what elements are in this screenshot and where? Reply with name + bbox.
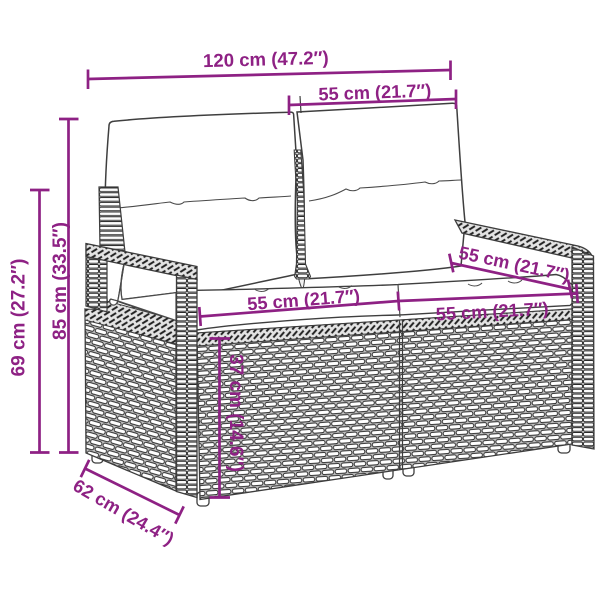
svg-text:37 cm (14.6″): 37 cm (14.6″) bbox=[225, 354, 246, 472]
svg-text:55 cm (21.7″): 55 cm (21.7″) bbox=[318, 81, 431, 105]
svg-text:69 cm (27.2″): 69 cm (27.2″) bbox=[9, 259, 30, 377]
svg-text:85 cm (33.5″): 85 cm (33.5″) bbox=[50, 222, 71, 340]
svg-text:120 cm (47.2″): 120 cm (47.2″) bbox=[203, 47, 329, 71]
